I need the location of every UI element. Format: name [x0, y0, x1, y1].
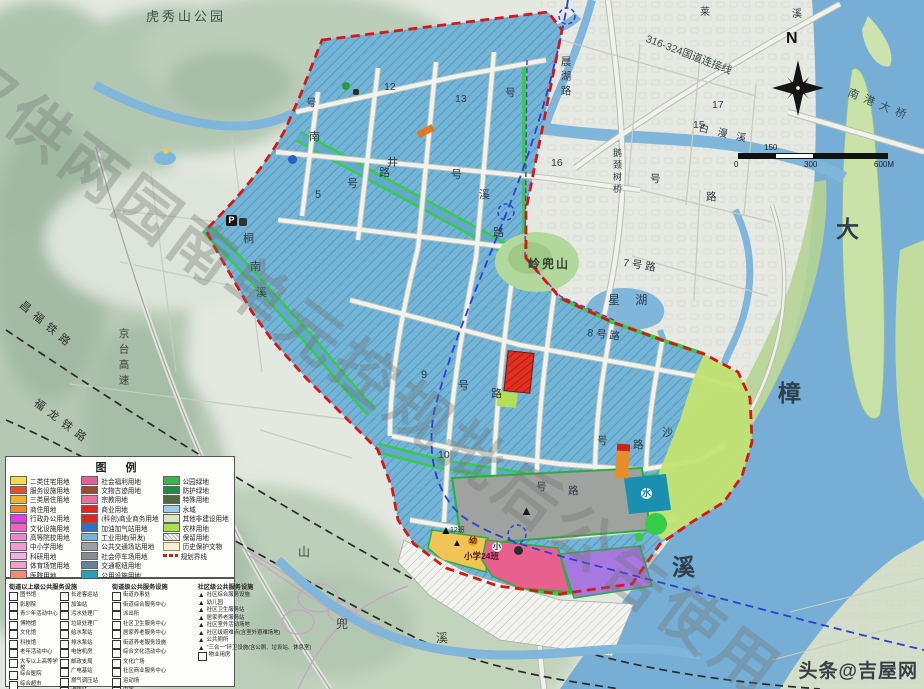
facility-item: 科技馆 — [9, 640, 58, 649]
facility-icon — [112, 592, 121, 601]
facility-icon: ▲ — [198, 592, 205, 599]
facility-item: 居家养老服务中心 — [112, 630, 195, 639]
scale-600: 600M — [874, 160, 894, 169]
legend-item: 农林用地 — [163, 523, 230, 532]
legend-swatch — [163, 523, 180, 532]
facility-icon: ▲ — [198, 637, 205, 644]
legend-item: 二类住宅用地 — [10, 476, 77, 485]
legend-item: 服务设施用地 — [10, 485, 77, 494]
facility-label: 青少年活动中心 — [20, 611, 58, 617]
facility-icon — [112, 630, 121, 639]
facility-item: 社区卫生服务中心 — [112, 621, 195, 630]
facility-label: 大专以上高等学校 — [20, 659, 58, 671]
scale-150: 150 — [764, 143, 777, 152]
facility-icon — [9, 602, 18, 611]
scale-300: 300 — [804, 160, 817, 169]
legend-swatch — [163, 533, 180, 542]
facility-icon — [9, 649, 18, 658]
legend-title: 图 例 — [10, 459, 230, 475]
facility-label: 综合超市 — [20, 681, 42, 687]
facility-label: 邮政支局 — [71, 659, 93, 665]
legend-item: 规划界线 — [163, 551, 230, 560]
legend-swatch — [163, 505, 180, 514]
facility-item: 街道综合服务中心 — [112, 602, 195, 611]
facility-icon — [112, 659, 121, 668]
facility-label: 社区商业服务中心 — [123, 668, 166, 674]
facility-label: 居家养老服务站 — [207, 615, 245, 621]
facility-icon — [112, 649, 121, 658]
facility-item: 大专以上高等学校 — [9, 659, 58, 671]
facility-label: 广电基站 — [71, 668, 93, 674]
facility-item: 垃圾处理厂 — [60, 621, 109, 630]
facility-item: 广电基站 — [60, 668, 109, 677]
facility-label: 加油站 — [71, 602, 87, 608]
legend-item: 公园绿地 — [163, 476, 230, 485]
legend-swatch — [81, 523, 98, 532]
facility-item: 加油站 — [60, 602, 109, 611]
facility-item: ▲社区卫生服务站 — [198, 607, 311, 614]
legend-swatch — [81, 476, 98, 485]
legend-swatch — [10, 486, 27, 495]
facility-item: ▲居家养老服务站 — [198, 615, 311, 622]
bus-stop-icon — [239, 218, 247, 226]
legend-swatch — [81, 542, 98, 551]
legend-item: 科研用地 — [10, 551, 77, 560]
facility-label: 排水泵站 — [71, 640, 93, 646]
legend-item: 文化设施用地 — [10, 523, 77, 532]
facility-item: 污水处理厂 — [60, 611, 109, 620]
legend-swatch — [163, 514, 180, 523]
facility-dot-icon — [514, 546, 523, 555]
facility-icon — [9, 611, 18, 620]
facility-item: 物业用房 — [198, 652, 311, 661]
facility-label: 公共厕所 — [207, 637, 229, 643]
facility-icon — [60, 621, 69, 630]
facility-label: 文化馆 — [20, 630, 36, 636]
legend-item: 三类居住用地 — [10, 495, 77, 504]
facility-item: 街道养老服务设施 — [112, 640, 195, 649]
legend-label: 规划界线 — [181, 551, 207, 561]
facility-label: 综合医院 — [20, 671, 42, 677]
facility-label: 给水泵站 — [71, 630, 93, 636]
facility-item: 长途客运站 — [60, 592, 109, 601]
legend-item: 中小学用地 — [10, 542, 77, 551]
legend-item: 行政办公用地 — [10, 514, 77, 523]
facility-icon — [60, 611, 69, 620]
facility-icon — [60, 659, 69, 668]
facility-label: 科技馆 — [20, 640, 36, 646]
facility-icon — [112, 611, 121, 620]
facility-icon — [60, 630, 69, 639]
facility-item: 综合超市 — [9, 681, 58, 689]
facility-item: ▲公共厕所 — [198, 637, 311, 644]
legend-swatch — [163, 495, 180, 504]
facility-label: 社区卫生服务中心 — [123, 621, 166, 627]
legend-swatch — [81, 533, 98, 542]
planning-map: N 0 150 300 600M 虎秀山公园316-324国道连接线南港大桥大樟… — [0, 0, 924, 689]
legend-swatch — [163, 542, 180, 551]
legend-swatch — [81, 495, 98, 504]
legend-item: 工业用地(研发) — [81, 532, 158, 541]
legend-item: 商住用地 — [10, 504, 77, 513]
facility-item: ▲"三合一"环卫设施(含公厕、垃圾站、休息室) — [198, 645, 311, 652]
legend-swatch — [81, 514, 98, 523]
lingdou-hill — [495, 232, 579, 292]
facility-item: 排水泵站 — [60, 640, 109, 649]
green-roundabout — [645, 513, 667, 535]
facility-item: 文化馆 — [9, 630, 58, 639]
legend-item: 特殊用地 — [163, 495, 230, 504]
facility-item: 电信机房 — [60, 649, 109, 658]
legend-item: 交通枢纽用地 — [81, 561, 158, 570]
facility-item: 给水泵站 — [60, 630, 109, 639]
facility-item: 老年活动中心 — [9, 649, 58, 658]
facility-icon — [112, 640, 121, 649]
legend-swatch — [10, 523, 27, 532]
shelter-icon: ▲ — [520, 504, 533, 517]
legend-swatch — [10, 495, 27, 504]
legend-swatch — [10, 552, 27, 561]
legend-item: 加油加气站用地 — [81, 523, 158, 532]
facility-item: 影剧院 — [9, 602, 58, 611]
shelter-icon: ▲ — [440, 524, 452, 536]
facility-item: 街道办事处 — [112, 592, 195, 601]
facility-icon — [60, 649, 69, 658]
legend-item: 高等院校用地 — [10, 532, 77, 541]
facility-icon: ▲ — [198, 622, 205, 629]
legend-item: 历史保护文物 — [163, 542, 230, 551]
facility-label: 垃圾处理厂 — [71, 621, 98, 627]
facility-item: 综合医院 — [9, 671, 58, 680]
facility-label: 运动场 — [123, 678, 139, 684]
legend-item: 水域 — [163, 504, 230, 513]
facility-group: 社区级公共服务设施▲社区综合服务设施▲幼儿园▲社区卫生服务站▲居家养老服务站▲社… — [198, 582, 311, 683]
legend-item: (科创)商业商务用地 — [81, 514, 158, 523]
parking-icon: P — [226, 215, 237, 226]
facility-item: ▲社区室外活动场地 — [198, 622, 311, 629]
gas-station-icon — [342, 82, 350, 90]
facility-item: 博物馆 — [9, 621, 58, 630]
north-label: N — [786, 30, 798, 48]
facility-icon — [9, 681, 18, 689]
facility-label: 街道养老服务设施 — [123, 640, 166, 646]
facility-icon: ▲ — [198, 645, 205, 652]
facility-label: 幼儿园 — [207, 600, 223, 606]
facility-icon — [9, 640, 18, 649]
toutiao-jiwu-logo: 头条@吉屋网 — [798, 656, 918, 683]
facility-item: ▲幼儿园 — [198, 600, 311, 607]
facility-group: 街道级公共服务设施街道办事处街道综合服务中心派出所社区卫生服务中心居家养老服务中… — [112, 582, 195, 683]
legend-swatch — [81, 486, 98, 495]
commercial-parcel — [504, 351, 534, 393]
legend-item: 体育场馆用地 — [10, 561, 77, 570]
facility-label: 老年活动中心 — [20, 649, 52, 655]
facility-label: 图书馆 — [20, 592, 36, 598]
legend-item: 宗教用地 — [81, 495, 158, 504]
facility-label: "三合一"环卫设施(含公厕、垃圾站、休息室) — [207, 645, 311, 651]
facility-icon — [60, 602, 69, 611]
school-icon: 小 — [492, 542, 502, 552]
facility-icon — [9, 671, 18, 680]
facility-label: 物业用房 — [209, 652, 231, 658]
facility-icon — [112, 668, 121, 677]
legend-item: 商业用地 — [81, 504, 158, 513]
facility-label: 博物馆 — [20, 621, 36, 627]
legend-swatch — [10, 476, 27, 485]
water-plant-icon: 水 — [641, 488, 652, 499]
facility-item: 邮政支局 — [60, 659, 109, 668]
facility-item: 青少年活动中心 — [9, 611, 58, 620]
facility-item: 文化广场 — [112, 659, 195, 668]
utility-icon — [288, 155, 297, 164]
facility-group: 街道以上级公共服务设施图书馆影剧院青少年活动中心博物馆文化馆科技馆老年活动中心大… — [9, 582, 109, 683]
facility-item: 燃气调压站 — [60, 678, 109, 687]
scale-bar: 0 150 300 600M — [738, 143, 898, 169]
legend-swatch — [10, 533, 27, 542]
facility-label: 电信机房 — [71, 649, 93, 655]
legend-panel: 图 例 二类住宅用地服务设施用地三类居住用地商住用地行政办公用地文化设施用地高等… — [5, 456, 235, 578]
facility-icon: ▲ — [198, 615, 205, 622]
facility-group-title: 街道以上级公共服务设施 — [9, 582, 109, 591]
facility-icon — [60, 668, 69, 677]
facility-item: 派出所 — [112, 611, 195, 620]
facility-item: ▲社区级避难点(含室外避难场地) — [198, 630, 311, 637]
facility-icon — [9, 621, 18, 630]
facility-group-title: 街道级公共服务设施 — [112, 582, 195, 591]
legend-item: 防护绿地 — [163, 485, 230, 494]
facility-label: 社区级避难点(含室外避难场地) — [207, 630, 281, 636]
facility-label: 街道办事处 — [123, 592, 150, 598]
facility-label: 影剧院 — [20, 602, 36, 608]
facility-label: 派出所 — [123, 611, 139, 617]
legend-swatch — [10, 561, 27, 570]
facility-icon: ▲ — [198, 600, 205, 607]
legend-item: 社会福利用地 — [81, 476, 158, 485]
legend-swatch — [10, 514, 27, 523]
kindergarten-icon: 幼 — [468, 536, 478, 546]
facility-icon — [60, 678, 69, 687]
facility-label: 文化广场 — [123, 659, 145, 665]
facility-icon — [9, 630, 18, 639]
legend-item: 社会停车场用地 — [81, 551, 158, 560]
facility-icon — [9, 592, 18, 601]
facility-icon — [60, 640, 69, 649]
facility-label: 污水处理厂 — [71, 611, 98, 617]
legend-swatch — [81, 552, 98, 561]
facility-label: 社区室外活动场地 — [207, 622, 250, 628]
legend-swatch — [163, 486, 180, 495]
facility-label: 长途客运站 — [71, 592, 98, 598]
facility-icon — [60, 592, 69, 601]
facility-item: 社区商业服务中心 — [112, 668, 195, 677]
facility-label: 居家养老服务中心 — [123, 630, 166, 636]
facility-item: ▲社区综合服务设施 — [198, 592, 311, 599]
facility-icon: ▲ — [198, 607, 205, 614]
scale-0: 0 — [734, 160, 738, 169]
facility-label: 燃气调压站 — [71, 678, 98, 684]
facility-icon — [9, 659, 18, 668]
legend-swatch — [10, 505, 27, 514]
facility-icon — [112, 678, 121, 687]
facility-label: 社区卫生服务站 — [207, 607, 245, 613]
shelter-icon: ▲ — [452, 539, 462, 549]
facility-icon — [112, 602, 121, 611]
legend-item: 公共交通场站用地 — [81, 542, 158, 551]
facility-icon — [198, 652, 207, 661]
legend-item: 其他非建设用地 — [163, 514, 230, 523]
facility-item: 综合文化活动中心 — [112, 649, 195, 658]
legend-swatch — [81, 505, 98, 514]
facility-icon: ▲ — [198, 630, 205, 637]
pond-marker-icon — [163, 148, 169, 154]
legend-swatch — [81, 561, 98, 570]
facility-item: 图书馆 — [9, 592, 58, 601]
facility-group-title: 社区级公共服务设施 — [198, 582, 311, 591]
facility-icon — [112, 621, 121, 630]
facility-item: 运动场 — [112, 678, 195, 687]
legend-item: 文物古迹用地 — [81, 485, 158, 494]
facility-label: 综合文化活动中心 — [123, 649, 166, 655]
facility-label: 街道综合服务中心 — [123, 602, 166, 608]
facilities-legend-panel: 街道以上级公共服务设施图书馆影剧院青少年活动中心博物馆文化馆科技馆老年活动中心大… — [5, 578, 235, 687]
substation-icon — [353, 89, 359, 95]
facility-label: 社区综合服务设施 — [207, 592, 250, 598]
legend-item: 保留用地 — [163, 532, 230, 541]
legend-swatch — [163, 554, 178, 557]
legend-swatch — [10, 542, 27, 551]
legend-swatch — [163, 476, 180, 485]
